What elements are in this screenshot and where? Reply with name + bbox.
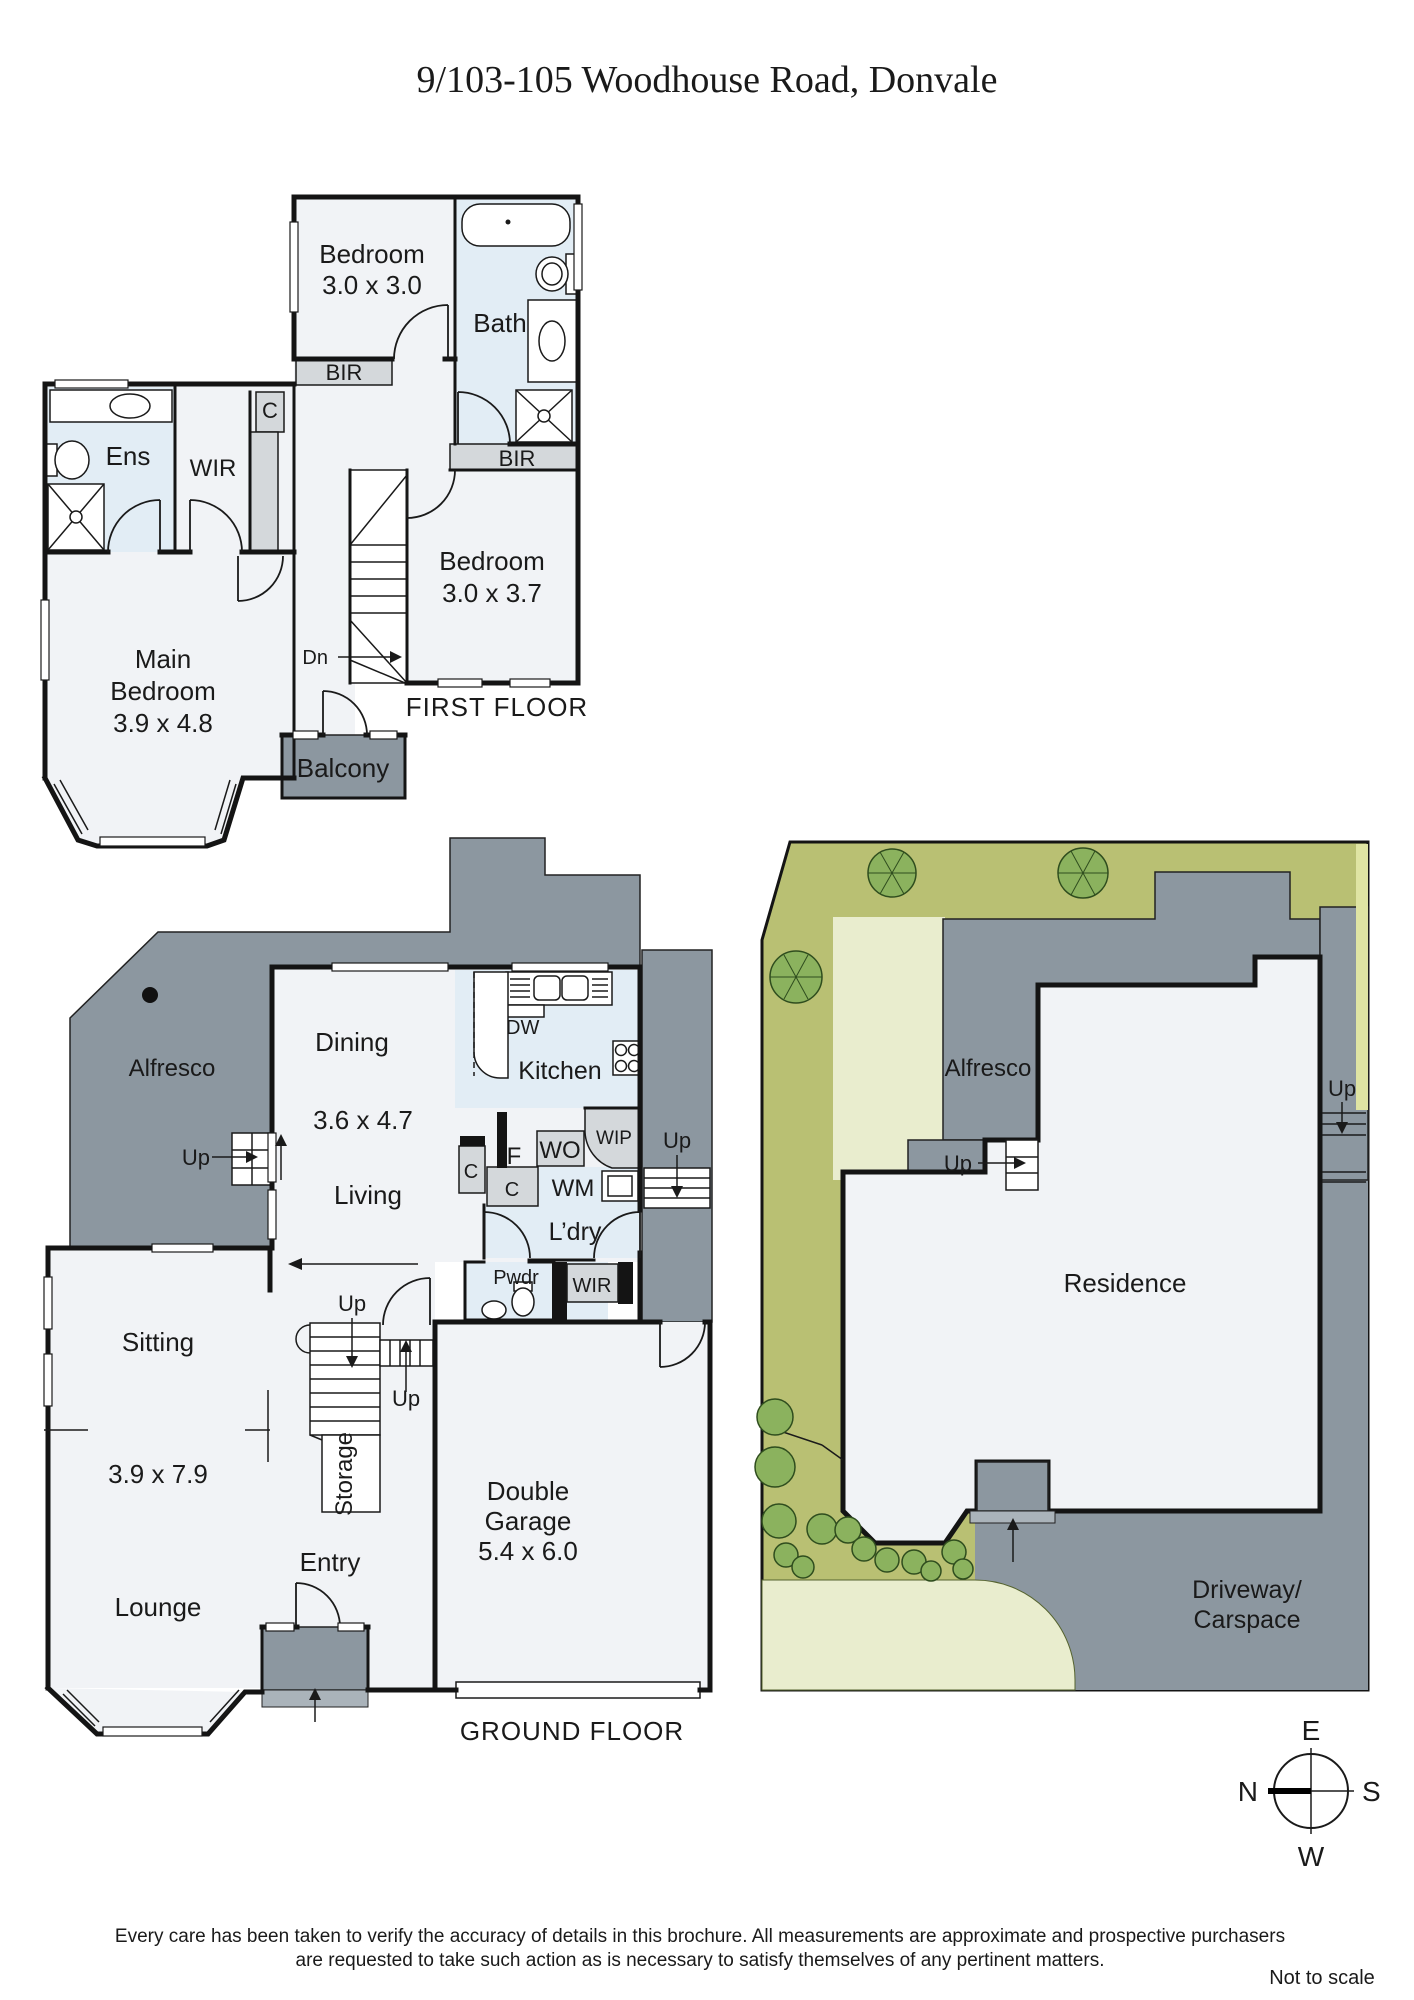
label-storage: Storage [331, 1432, 358, 1516]
lawn-bottom [762, 1580, 1075, 1690]
label-driveway-2: Carspace [1194, 1606, 1301, 1634]
label-wo: WO [539, 1137, 580, 1164]
label-residence: Residence [1064, 1268, 1187, 1298]
first-floor-plan: Bedroom 3.0 x 3.0 Bath Ens WIR C BIR BIR… [41, 197, 588, 846]
label-bedroom2-name: Bedroom [319, 239, 425, 269]
compass-s: S [1362, 1776, 1381, 1807]
label-entry: Entry [300, 1547, 361, 1577]
label-c-first: C [262, 398, 278, 423]
label-bir2: BIR [499, 446, 536, 471]
label-garage-1: Double [487, 1476, 569, 1506]
label-up-laundry: Up [663, 1128, 691, 1153]
label-sitting: Sitting [122, 1327, 194, 1357]
label-dn: Dn [302, 647, 328, 669]
entry-porch [262, 1627, 368, 1690]
compass-n: N [1238, 1776, 1258, 1807]
ground-floor-plan: Alfresco Dining 3.6 x 4.7 Living Kitchen… [44, 838, 712, 1746]
label-wir-ground: WIR [573, 1275, 612, 1297]
caption-ground-floor: GROUND FLOOR [460, 1716, 684, 1746]
label-c2: C [505, 1179, 519, 1201]
compass-w: W [1298, 1841, 1325, 1872]
label-sitting-dims: 3.9 x 7.9 [108, 1459, 208, 1489]
caption-first-floor: FIRST FLOOR [406, 692, 588, 722]
label-dining-dims: 3.6 x 4.7 [313, 1105, 413, 1135]
label-mainbed-2: Bedroom [110, 676, 216, 706]
label-bedroom3-dims: 3.0 x 3.7 [442, 578, 542, 608]
label-f: F [507, 1143, 522, 1170]
label-wir-first: WIR [190, 455, 237, 482]
label-bedroom2-dims: 3.0 x 3.0 [322, 270, 422, 300]
label-alfresco-site: Alfresco [945, 1055, 1032, 1082]
label-garage-dims: 5.4 x 6.0 [478, 1536, 578, 1566]
label-ldry: L’dry [549, 1218, 602, 1246]
label-ens: Ens [106, 441, 151, 471]
label-up-alfresco: Up [182, 1145, 210, 1170]
label-bir1: BIR [326, 360, 363, 385]
label-alfresco-ground: Alfresco [129, 1055, 216, 1082]
label-driveway-1: Driveway/ [1192, 1576, 1302, 1604]
floorplan-canvas: 9/103-105 Woodhouse Road, Donvale [0, 0, 1414, 2000]
label-up-stairs2: Up [392, 1386, 420, 1411]
disclaimer-line1: Every care has been taken to verify the … [115, 1926, 1285, 1947]
label-bath: Bath [473, 308, 527, 338]
compass: E N S W [1238, 1715, 1381, 1872]
label-up-site-alfresco: Up [944, 1151, 972, 1176]
label-lounge: Lounge [115, 1592, 202, 1622]
label-up-stairs1: Up [338, 1291, 366, 1316]
label-up-site-right: Up [1328, 1076, 1356, 1101]
label-c1: C [464, 1161, 478, 1183]
label-mainbed-1: Main [135, 644, 191, 674]
label-balcony: Balcony [297, 753, 390, 783]
not-to-scale: Not to scale [1269, 1967, 1375, 1989]
label-living: Living [334, 1180, 402, 1210]
label-dining: Dining [315, 1027, 389, 1057]
label-pwdr: Pwdr [493, 1267, 539, 1289]
disclaimer-line2: are requested to take such action as is … [296, 1950, 1105, 1971]
label-mainbed-dims: 3.9 x 4.8 [113, 708, 213, 738]
label-bedroom3-name: Bedroom [439, 546, 545, 576]
floorplan-page: 9/103-105 Woodhouse Road, Donvale [0, 0, 1414, 2000]
site-porch [977, 1462, 1048, 1511]
label-dw: DW [506, 1017, 539, 1039]
page-title: 9/103-105 Woodhouse Road, Donvale [417, 59, 998, 101]
site-plan: Alfresco Up Up Residence Driveway/ Carsp… [755, 842, 1368, 1690]
label-wm: WM [552, 1175, 595, 1202]
label-kitchen: Kitchen [518, 1057, 601, 1085]
label-garage-2: Garage [485, 1506, 572, 1536]
compass-e: E [1302, 1715, 1321, 1746]
garage-door [456, 1682, 700, 1698]
footer: Every care has been taken to verify the … [115, 1926, 1375, 1989]
label-wip: WIP [596, 1128, 632, 1149]
